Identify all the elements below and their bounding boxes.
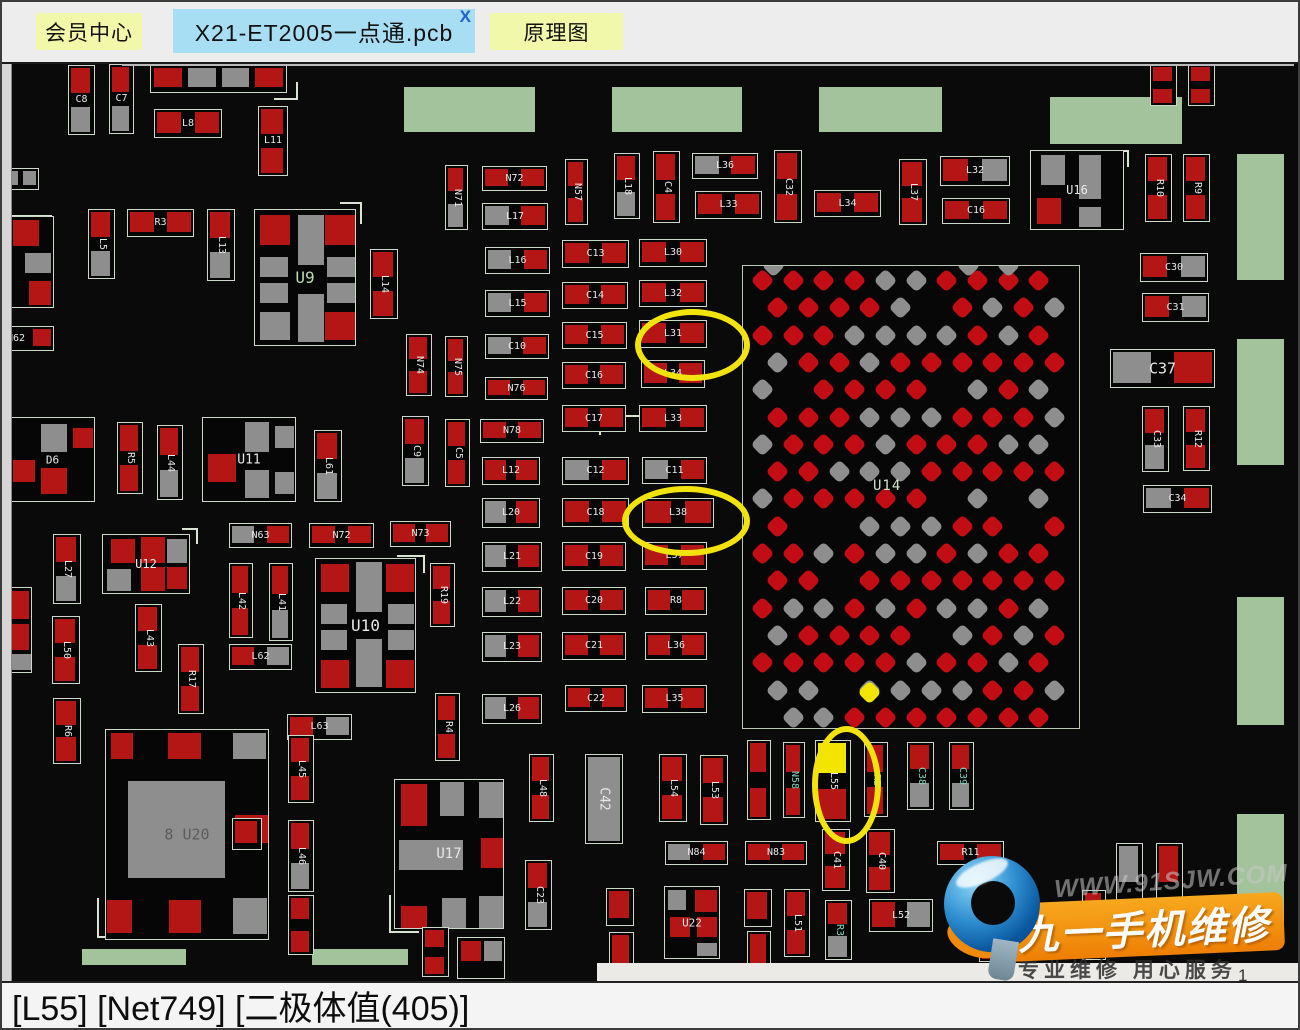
bga-ball[interactable] [950,514,974,538]
component-n58[interactable]: N58 [783,742,805,818]
bga-ball[interactable] [904,378,928,402]
bga-ball[interactable] [996,596,1020,620]
component-part[interactable] [744,889,772,927]
component-c42[interactable]: C42 [585,754,623,844]
bga-ball[interactable] [965,651,989,675]
component-l50[interactable]: L50 [52,616,80,684]
bga-ball[interactable] [904,268,928,292]
bga-ball[interactable] [904,651,928,675]
bga-ball[interactable] [919,460,943,484]
component-c15[interactable]: C15 [562,322,627,349]
component-u9[interactable]: U9 [254,209,356,346]
bga-ball[interactable] [996,432,1020,456]
component-l16[interactable]: L16 [485,247,550,274]
component-c16[interactable]: C16 [562,362,626,389]
component-n76[interactable]: N76 [485,377,548,400]
component-part[interactable] [10,216,54,308]
bga-ball[interactable] [1011,623,1035,647]
bga-ball[interactable] [873,651,897,675]
component-l35[interactable]: L35 [642,685,707,713]
bga-ball[interactable] [889,514,913,538]
bga-ball[interactable] [858,350,882,374]
component-l20[interactable]: L20 [482,498,540,528]
bga-ball[interactable] [812,378,836,402]
bga-ball[interactable] [858,569,882,593]
component-l54[interactable]: L54 [659,754,687,822]
component-l33[interactable]: L33 [639,405,707,432]
component-l46[interactable]: L46 [288,820,314,892]
bga-ball[interactable] [981,296,1005,320]
component-l52[interactable]: L52 [869,899,933,932]
bga-ball[interactable] [950,623,974,647]
highlight-ellipse [812,726,881,844]
canvas-left-gutter [2,64,12,987]
bga-ball[interactable] [812,705,836,729]
bga-ball[interactable] [919,405,943,429]
component-l61[interactable]: L61 [314,430,342,502]
bga-ball[interactable] [935,596,959,620]
component-n63[interactable]: N63 [229,523,292,548]
bga-ball[interactable] [1011,569,1035,593]
bga-ball[interactable] [904,596,928,620]
bga-ball[interactable] [858,296,882,320]
component-r9[interactable]: R9 [1183,154,1210,222]
bga-ball[interactable] [843,541,867,565]
bga-ball[interactable] [1027,268,1051,292]
bga-ball[interactable] [766,405,790,429]
bga-ball[interactable] [750,323,774,347]
bga-ball[interactable] [904,323,928,347]
component-c39[interactable]: C39 [949,742,974,810]
component-l34[interactable]: L34 [814,190,881,217]
bga-ball[interactable] [797,678,821,702]
bga-ball[interactable] [873,596,897,620]
bga-ball[interactable] [996,541,1020,565]
bga-ball[interactable] [873,432,897,456]
bga-ball[interactable] [843,323,867,347]
bga-ball[interactable] [889,678,913,702]
component-l43[interactable]: L43 [135,604,162,672]
component-c37[interactable]: C37 [1110,349,1215,388]
bga-ball[interactable] [889,623,913,647]
status-text: [L55] [Net749] [二极体值(405)] [2,981,469,1030]
component-c17[interactable]: C17 [562,405,626,432]
component-l33[interactable]: L33 [695,191,762,219]
app-window: 会员中心 X21-ET2005一点通.pcb X 原理图 WWW.91SJW.C… [0,0,1300,1030]
component-c30[interactable]: C30 [1140,253,1208,282]
component-c19[interactable]: C19 [562,542,626,571]
component-l17[interactable]: L17 [482,203,548,230]
bga-ball[interactable] [797,405,821,429]
bga-ball[interactable] [950,405,974,429]
bga-ball[interactable] [843,268,867,292]
component-c33[interactable]: C33 [1142,406,1169,472]
component-c40[interactable]: C40 [866,829,895,893]
bga-ball[interactable] [827,623,851,647]
component-part[interactable] [150,64,287,93]
bga-ball[interactable] [1011,350,1035,374]
component-l15[interactable]: L15 [485,290,550,317]
board-zone [819,87,942,132]
bga-ball[interactable] [781,432,805,456]
bga-ball[interactable] [1027,487,1051,511]
component-c38[interactable]: C38 [907,742,934,810]
component-n74[interactable]: N74 [406,334,432,396]
bga-ball[interactable] [919,350,943,374]
component-l18[interactable]: L18 [614,153,640,219]
component-c5[interactable]: C5 [445,419,470,487]
bga-ball[interactable] [981,623,1005,647]
bga-ball[interactable] [750,378,774,402]
board-zone [612,87,742,132]
component-l32[interactable]: L32 [940,156,1010,186]
bga-ball[interactable] [797,296,821,320]
logo-ring-hole [971,881,1015,925]
component-l32[interactable]: L32 [639,280,707,307]
bga-ball[interactable] [919,678,943,702]
bga-ball[interactable] [781,705,805,729]
bga-ball[interactable] [750,651,774,675]
component-r4[interactable]: R4 [435,693,460,761]
bga-ball[interactable] [843,596,867,620]
component-l44[interactable]: L44 [157,425,183,500]
component-c4[interactable]: C4 [653,151,680,223]
component-l26[interactable]: L26 [482,694,542,724]
bga-ball[interactable] [950,296,974,320]
bga-ball[interactable] [812,432,836,456]
bga-ball[interactable] [843,432,867,456]
bga-ball[interactable] [812,268,836,292]
bga-ball[interactable] [1027,651,1051,675]
bga-ball[interactable] [1011,678,1035,702]
bga-ball[interactable] [812,541,836,565]
bga-ball[interactable] [950,678,974,702]
bga-ball[interactable] [873,268,897,292]
component-l37[interactable]: L37 [899,159,927,225]
component-part[interactable] [232,818,262,850]
bga-ball[interactable] [797,569,821,593]
bga-ball[interactable] [904,487,928,511]
component-n78[interactable]: N78 [480,419,544,443]
bga-ball[interactable] [797,460,821,484]
component-l11[interactable]: L11 [258,106,288,176]
bga-ball[interactable] [935,268,959,292]
component-l62[interactable]: L62 [229,644,292,670]
component-c14[interactable]: C14 [562,282,628,309]
bga-ball[interactable] [1027,596,1051,620]
bga-ball[interactable] [858,405,882,429]
board-zone [404,87,535,132]
bga-ball[interactable] [766,569,790,593]
bga-ball[interactable] [766,514,790,538]
component-n75[interactable]: N75 [445,336,468,397]
bga-ball[interactable] [843,487,867,511]
board-zone [82,949,186,965]
bga-ball[interactable] [781,323,805,347]
tab-pcb-file-label: X21-ET2005一点通.pcb [195,14,454,48]
bga-ball[interactable] [889,296,913,320]
logo-9-tail [987,938,1019,982]
chip-u14[interactable]: U14 [742,265,1080,729]
component-part[interactable] [457,937,505,979]
status-bar: [L55] [Net749] [二极体值(405)] [2,981,1298,1028]
bga-ball[interactable] [827,460,851,484]
component-l41[interactable]: L41 [269,563,293,641]
component-c18[interactable]: C18 [562,498,629,527]
bga-ball[interactable] [965,323,989,347]
bga-ball[interactable] [1042,623,1066,647]
component-part[interactable] [422,927,449,977]
bga-ball[interactable] [750,487,774,511]
bga-ball[interactable] [965,705,989,729]
bga-ball[interactable] [781,541,805,565]
bga-ball[interactable] [965,596,989,620]
bga-ball[interactable] [766,296,790,320]
component-u12[interactable]: U12 [102,534,190,594]
bga-ball[interactable] [935,432,959,456]
component-part[interactable] [1188,64,1215,106]
bga-ball[interactable] [843,651,867,675]
bga-ball[interactable] [904,705,928,729]
bga-ball[interactable] [750,596,774,620]
bga-ball[interactable] [965,378,989,402]
bga-ball[interactable] [827,350,851,374]
component-n73[interactable]: N73 [390,521,451,547]
component-part[interactable] [1150,64,1177,106]
board-zone [1237,597,1284,725]
component-n72[interactable]: N72 [482,166,547,191]
close-icon[interactable]: X [460,7,472,27]
bga-ball[interactable] [981,350,1005,374]
bga-ball[interactable] [965,487,989,511]
bga-ball[interactable] [1042,678,1066,702]
bga-ball[interactable] [1042,460,1066,484]
board-zone [1237,339,1284,465]
highlight-ellipse [635,309,750,381]
component-l8[interactable]: L8 [154,109,222,138]
tab-member-center[interactable]: 会员中心 [36,13,142,50]
tab-pcb-file[interactable]: X21-ET2005一点通.pcb X [173,9,475,53]
bga-ball[interactable] [858,514,882,538]
bga-ball[interactable] [1042,569,1066,593]
bga-ball[interactable] [981,405,1005,429]
component-c34[interactable]: C34 [1143,485,1212,513]
component-d6[interactable]: D6 [10,417,95,502]
board-zone [1237,154,1284,280]
tab-member-center-label: 会员中心 [45,17,133,47]
component-l45[interactable]: L45 [288,735,314,803]
component-part[interactable] [288,895,314,955]
bga-ball[interactable] [750,432,774,456]
component-n83[interactable]: N83 [745,841,807,865]
component-c22[interactable]: C22 [565,685,627,712]
bga-ball[interactable] [965,541,989,565]
component-r8[interactable]: R8 [645,587,707,615]
component-l30[interactable]: L30 [639,239,707,267]
bga-ball[interactable] [858,623,882,647]
component-l48[interactable]: L48 [529,754,554,822]
bga-ball[interactable] [766,678,790,702]
bga-ball[interactable] [1027,705,1051,729]
component-r3[interactable]: R3 [825,900,852,960]
bga-ball[interactable] [766,350,790,374]
bga-ball[interactable] [919,514,943,538]
bga-ball[interactable] [1042,296,1066,320]
bga-ball[interactable] [797,623,821,647]
component-r19[interactable]: R19 [430,563,455,627]
watermark-banner: 九一手机维修 [1003,892,1285,962]
component-c32[interactable]: C32 [774,150,802,223]
bga-ball[interactable] [996,323,1020,347]
tab-bar: 会员中心 X21-ET2005一点通.pcb X 原理图 [2,2,1298,65]
bga-ball[interactable] [797,350,821,374]
bga-ball[interactable] [827,296,851,320]
highlight-ellipse [622,486,750,556]
bga-ball[interactable] [935,541,959,565]
bga-ball[interactable] [873,705,897,729]
bga-ball[interactable] [981,460,1005,484]
bga-ball[interactable] [812,651,836,675]
bga-ball[interactable] [812,487,836,511]
component-n71[interactable]: N71 [445,165,468,230]
component-u22[interactable]: U22 [664,886,720,959]
bga-ball[interactable] [1027,541,1051,565]
component-l27[interactable]: L27 [53,534,81,604]
bga-ball[interactable] [781,596,805,620]
bga-ball[interactable] [1011,296,1035,320]
bga-ball[interactable] [873,378,897,402]
component-r17[interactable]: R17 [178,644,204,714]
bga-ball[interactable] [904,432,928,456]
watermark-banner-text: 九一手机维修 [1017,893,1271,962]
component-l12[interactable]: L12 [482,457,540,485]
bga-ball[interactable] [843,378,867,402]
bga-ball[interactable] [766,460,790,484]
bga-ball[interactable] [950,350,974,374]
bga-ball[interactable] [827,405,851,429]
component-n57[interactable]: N57 [565,159,588,225]
bga-ball[interactable] [889,350,913,374]
component-n72[interactable]: N72 [309,523,374,548]
canvas-top-edge [122,64,1294,66]
bga-ball[interactable] [781,268,805,292]
component-part[interactable] [606,888,634,926]
bga-ball[interactable] [981,514,1005,538]
component-l22[interactable]: L22 [482,587,542,617]
component-c7[interactable]: C7 [109,64,134,134]
component-c21[interactable]: C21 [562,632,626,660]
component-l53[interactable]: L53 [700,755,728,825]
component-c31[interactable]: C31 [1142,293,1209,322]
board-zone [312,949,408,965]
component-l51[interactable]: L51 [784,889,810,957]
bga-ball[interactable] [812,596,836,620]
bga-ball[interactable] [1042,350,1066,374]
component-c10[interactable]: C10 [485,334,549,359]
component-l36[interactable]: L36 [645,632,707,660]
bga-ball-selected[interactable] [857,680,881,704]
component-l21[interactable]: L21 [482,542,542,572]
bga-ball[interactable] [981,569,1005,593]
bga-ball[interactable] [1027,323,1051,347]
component-l36[interactable]: L36 [692,153,758,179]
bga-ball[interactable] [889,569,913,593]
component-l13[interactable]: L13 [207,209,235,281]
bga-ball[interactable] [750,541,774,565]
component-u17[interactable]: U17 [394,779,504,929]
chip-label: U14 [873,478,901,494]
bga-ball[interactable] [1027,378,1051,402]
watermark-9-logo-icon [944,856,1044,984]
tab-schematic[interactable]: 原理图 [490,13,623,50]
bga-ball[interactable] [965,432,989,456]
bga-ball[interactable] [935,323,959,347]
pcb-canvas[interactable]: WWW.91SJW.COM 九一手机维修 专业维修 用心服务 1 C8C7L8L… [2,64,1300,987]
bga-ball[interactable] [781,487,805,511]
component-c16[interactable]: C16 [942,198,1010,224]
bga-ball[interactable] [812,323,836,347]
component-c13[interactable]: C13 [562,240,629,268]
bga-ball[interactable] [1042,514,1066,538]
bga-ball[interactable] [950,569,974,593]
bga-ball[interactable] [996,651,1020,675]
bga-ball[interactable] [781,651,805,675]
component-u10[interactable]: U10 [315,558,416,693]
bga-ball[interactable] [935,651,959,675]
component-r12[interactable]: R12 [1183,406,1210,471]
bga-ball[interactable] [950,460,974,484]
bga-ball[interactable] [996,378,1020,402]
component-c23[interactable]: C23 [525,860,552,930]
bga-ball[interactable] [873,323,897,347]
bga-ball[interactable] [935,705,959,729]
component-c11[interactable]: C11 [642,457,707,484]
component-l14[interactable]: L14 [370,249,398,319]
bga-ball[interactable] [919,569,943,593]
bga-ball[interactable] [766,623,790,647]
component-c20[interactable]: C20 [562,587,626,615]
bga-ball[interactable] [1042,405,1066,429]
component-c9[interactable]: C9 [402,416,429,486]
tab-schematic-label: 原理图 [524,17,590,47]
bga-ball[interactable] [1027,432,1051,456]
component-l42[interactable]: L42 [229,563,253,638]
component-u16[interactable]: U16 [1030,150,1124,230]
component-c8[interactable]: C8 [68,65,95,135]
component-r6[interactable]: R6 [53,698,81,764]
bga-ball[interactable] [889,405,913,429]
component-l5[interactable]: L5 [88,209,115,279]
bga-ball[interactable] [1011,460,1035,484]
component-u11[interactable]: U11 [202,417,296,502]
component-l23[interactable]: L23 [482,632,542,662]
component-r3[interactable]: R3 [127,209,194,237]
bga-ball[interactable] [981,678,1005,702]
bga-ball[interactable] [904,541,928,565]
component-c12[interactable]: C12 [562,457,629,485]
component-r5[interactable]: R5 [117,422,143,494]
bga-ball[interactable] [996,705,1020,729]
component-r10[interactable]: R10 [1145,154,1172,222]
component-part[interactable] [747,740,771,820]
bga-ball[interactable] [873,541,897,565]
bga-ball[interactable] [1011,405,1035,429]
component-n84[interactable]: N84 [665,841,728,865]
